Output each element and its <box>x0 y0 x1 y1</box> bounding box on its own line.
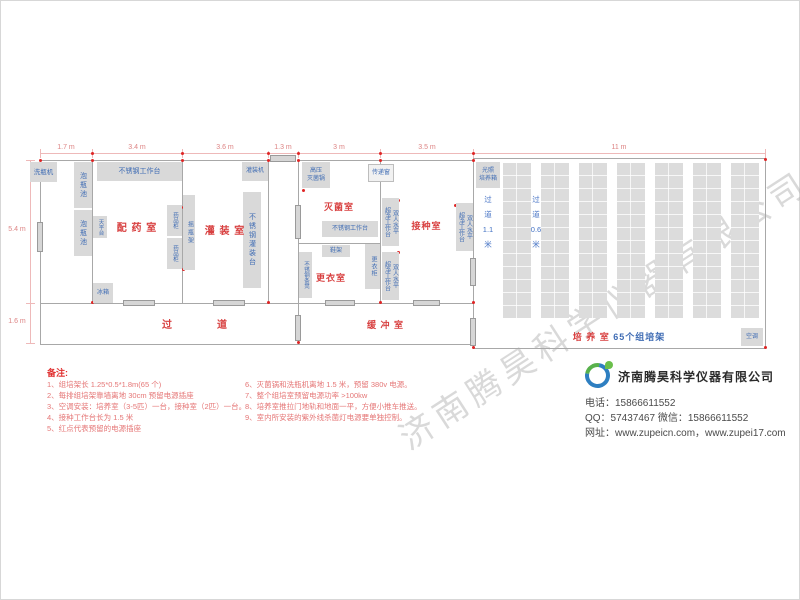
power-outlet-dot <box>297 159 300 162</box>
power-outlet-dot <box>472 301 475 304</box>
note-item: 5、红点代表预留的电源插座 <box>47 423 246 434</box>
wall <box>155 303 213 304</box>
room-label-culture-name: 培 养 室 <box>573 332 614 342</box>
power-outlet-dot <box>472 152 475 155</box>
dim-label: 3 m <box>321 144 357 151</box>
culture-rack-row <box>731 163 759 318</box>
wall <box>40 160 268 161</box>
power-outlet-dot <box>379 301 382 304</box>
dim-label: 1.3 m <box>265 144 301 151</box>
equipment-light-incubator: 光照 培养箱 <box>476 162 500 188</box>
dim-label: 3.5 m <box>409 144 445 151</box>
dim-label: 3.6 m <box>207 144 243 151</box>
power-outlet-dot <box>379 159 382 162</box>
note-item: 3、空调安装：培养室（3-5匹）一台，接种室（2匹）一台。 <box>47 401 246 412</box>
power-outlet-dot <box>764 158 767 161</box>
equipment-steel-workbench: 不锈钢工作台 <box>97 162 182 181</box>
dim-label: 11 m <box>601 144 637 151</box>
power-outlet-dot <box>181 152 184 155</box>
room-label-dispensing: 配 药 室 <box>92 219 182 234</box>
wall <box>765 158 766 349</box>
equipment-fridge: 冰箱 <box>93 283 113 303</box>
door <box>325 300 355 306</box>
room-label-culture-racks: 65个组培架 <box>613 332 665 342</box>
dim-tick <box>40 149 41 158</box>
power-outlet-dot <box>302 189 305 192</box>
equipment-bottle-washer: 洗瓶机 <box>30 162 57 182</box>
power-outlet-dot <box>379 152 382 155</box>
company-block: 济南腾昊科学仪器有限公司 电话：15866611552 QQ：57437467 … <box>583 360 793 435</box>
company-website: 网址：www.zupeicn.com，www.zupei17.com <box>585 424 786 439</box>
equipment-filling-machine: 灌装机 <box>242 162 268 181</box>
power-outlet-dot <box>267 301 270 304</box>
equipment-pass-through-window: 传递窗 <box>368 164 394 182</box>
room-label-filling: 灌 装 室 <box>182 222 268 237</box>
equipment-medicine-cabinet: 药品柜 <box>167 238 182 269</box>
dimension-line-top <box>40 153 766 154</box>
dim-tick <box>765 149 766 158</box>
wall <box>268 160 269 303</box>
wall <box>40 344 473 345</box>
door <box>123 300 155 306</box>
culture-rack-row <box>655 163 683 318</box>
notes-column-left: 1、组培架长 1.25*0.5*1.8m(65 个)2、每排组培架靠墙离地 30… <box>47 379 246 434</box>
wall <box>473 348 766 349</box>
culture-rack-row <box>541 163 569 318</box>
door <box>470 258 476 286</box>
culture-rack-row <box>693 163 721 318</box>
company-logo-icon <box>585 363 610 388</box>
equipment-steel-workbench: 不锈钢工作台 <box>322 221 378 237</box>
note-item: 4、接种工作台长为 1.5 米 <box>47 412 246 423</box>
power-outlet-dot <box>267 152 270 155</box>
corridor-width-label-1: 过 道 1.1 米 <box>480 192 496 252</box>
wall <box>473 158 765 159</box>
wall <box>440 303 473 304</box>
power-outlet-dot <box>297 152 300 155</box>
room-label-buffer: 缓 冲 室 <box>298 318 473 331</box>
door <box>413 300 440 306</box>
corridor-width-label-2: 过 道 0.6 米 <box>528 192 544 252</box>
company-phone: 电话：15866611552 <box>585 394 675 409</box>
note-item: 2、每排组培架靠墙离地 30cm 预留电源插座 <box>47 390 246 401</box>
wall <box>40 303 123 304</box>
power-outlet-dot <box>472 346 475 349</box>
power-outlet-dot <box>472 159 475 162</box>
note-item: 6、灭菌锅和洗瓶机离地 1.5 米，预留 380v 电源。 <box>245 379 422 390</box>
note-item: 8、培养室推拉门地轨和地面一平，方便小推车推送。 <box>245 401 422 412</box>
window <box>37 222 43 252</box>
room-label-culture: 培 养 室 65个组培架 <box>473 330 765 343</box>
dimension-line-left <box>30 160 31 344</box>
culture-rack-row <box>617 163 645 318</box>
dim-label: 1.6 m <box>6 318 28 325</box>
company-qq-wechat: QQ：57437467 微信：15866611552 <box>585 409 748 424</box>
dim-tick <box>26 343 35 344</box>
culture-rack-row <box>579 163 607 318</box>
equipment-soaking-pool: 泡瓶池 <box>74 210 92 256</box>
room-label-inoculation: 接种室 <box>380 219 473 232</box>
equipment-locker: 更衣柜 <box>365 244 380 289</box>
dim-tick <box>26 160 35 161</box>
dim-label: 1.7 m <box>48 144 84 151</box>
dim-tick <box>26 303 35 304</box>
room-label-sterilizing: 灭菌室 <box>298 200 380 213</box>
note-item: 7、整个组培室预留电源功率 >100kw <box>245 390 422 401</box>
room-label-changing: 更衣室 <box>300 271 362 284</box>
dim-label: 3.4 m <box>119 144 155 151</box>
wall <box>245 303 325 304</box>
power-outlet-dot <box>764 346 767 349</box>
wall <box>298 160 473 161</box>
equipment-soaking-pool: 泡瓶池 <box>74 162 92 208</box>
dim-label: 5.4 m <box>6 226 28 233</box>
note-item: 1、组培架长 1.25*0.5*1.8m(65 个) <box>47 379 246 390</box>
equipment-steel-filling-table: 不锈钢灌装台 <box>243 192 261 288</box>
equipment-autoclave: 高压 灭菌锅 <box>302 162 330 188</box>
blueprint-canvas: 济南腾昊科学仪器有限公司 1.7 m 3.4 m 3.6 m 1.3 m 3 m… <box>0 0 800 600</box>
logo-leaf-icon <box>605 361 613 369</box>
note-item: 9、室内所安装的紫外线杀菌灯电源要单独控制。 <box>245 412 422 423</box>
power-outlet-dot <box>297 341 300 344</box>
wall <box>355 303 413 304</box>
power-outlet-dot <box>91 152 94 155</box>
equipment-laminar-flow-bench: 双人水平 超净工作台 <box>382 252 399 300</box>
culture-rack-row <box>503 163 531 318</box>
door <box>213 300 245 306</box>
company-name: 济南腾昊科学仪器有限公司 <box>618 368 774 385</box>
notes-header: 备注: <box>47 366 68 379</box>
room-label-corridor: 过 道 <box>92 316 298 331</box>
equipment-shoe-rack: 鞋架 <box>322 245 350 257</box>
notes-column-right: 6、灭菌锅和洗瓶机离地 1.5 米，预留 380v 电源。7、整个组培室预留电源… <box>245 379 422 423</box>
sliding-door <box>270 155 296 162</box>
wall <box>40 160 41 344</box>
